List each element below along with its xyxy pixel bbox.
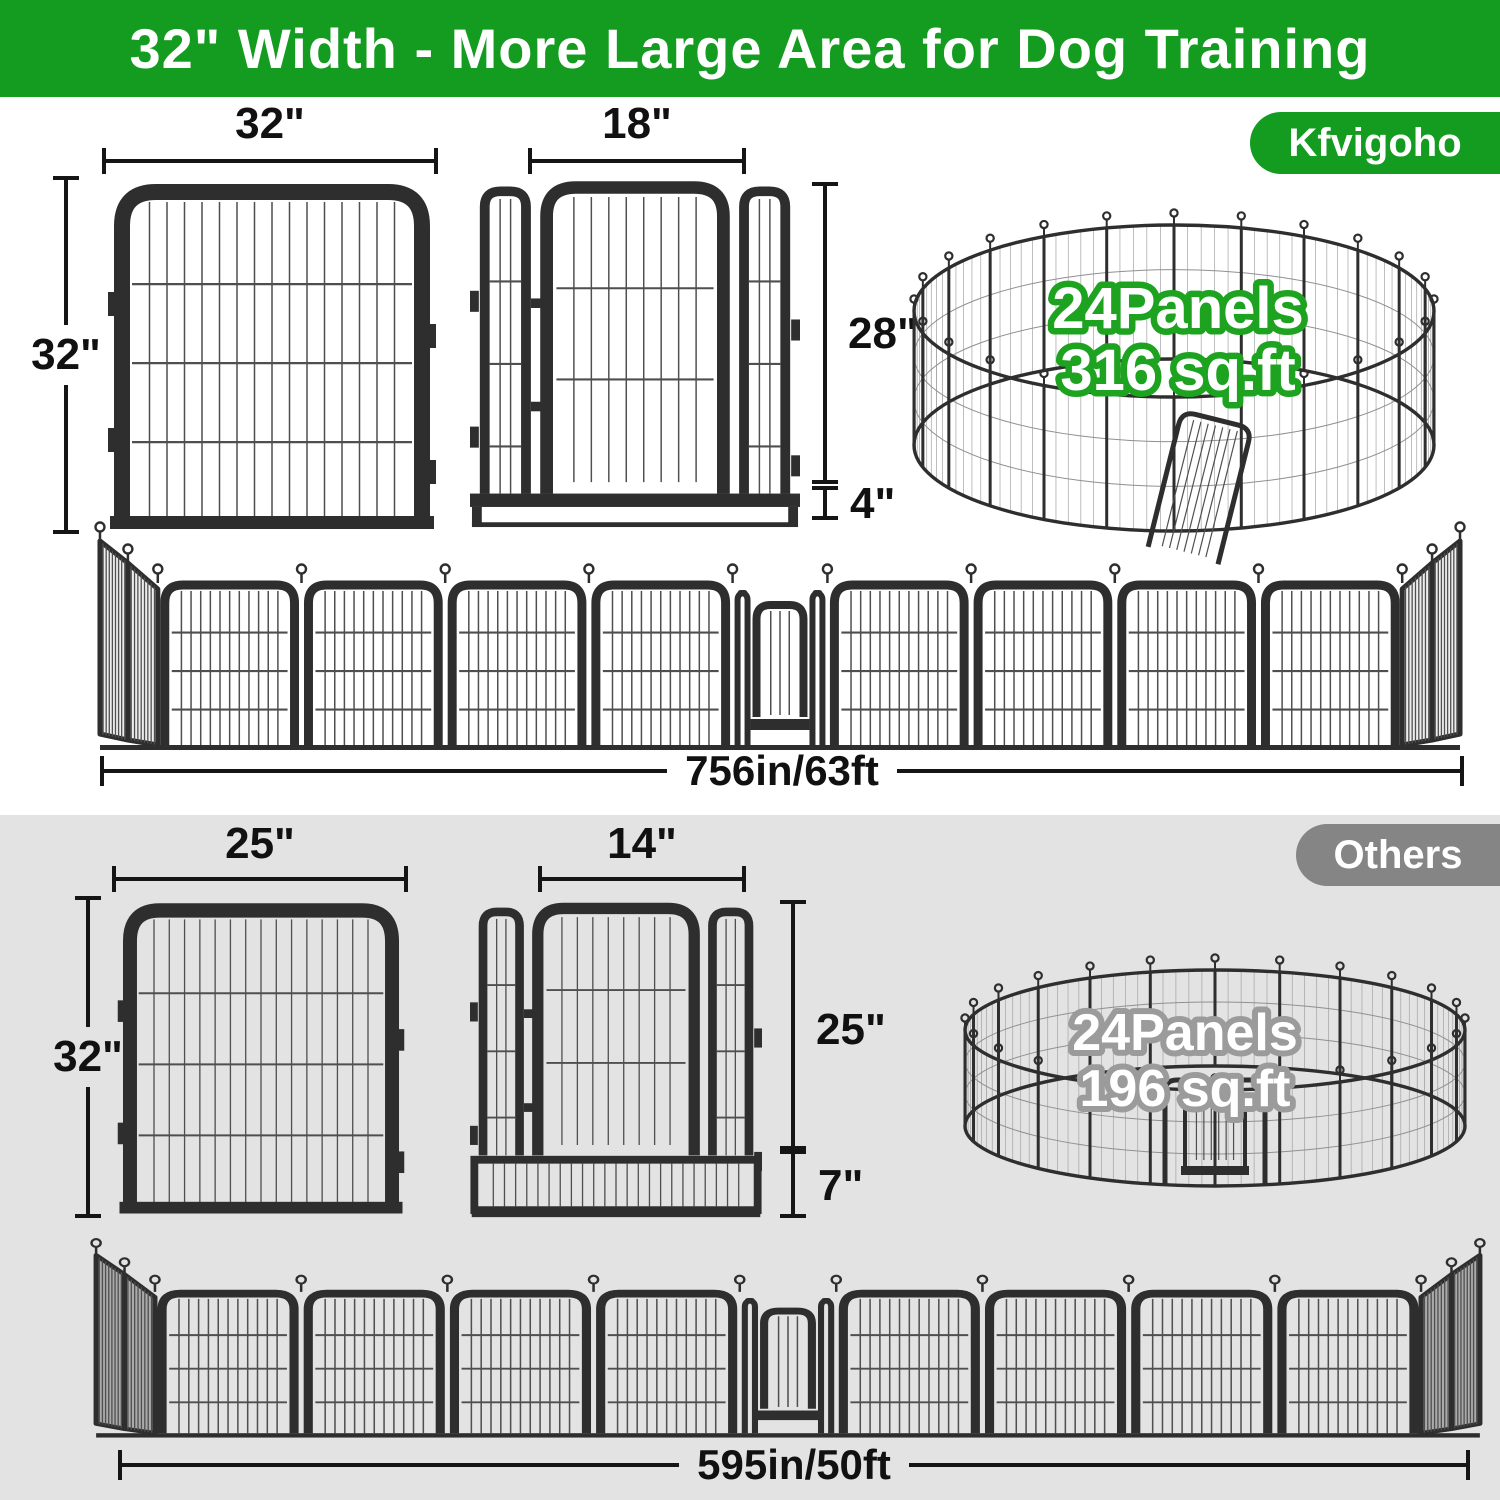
dimension-line — [791, 900, 795, 1150]
dimension-tick — [528, 148, 532, 174]
others-door-width-dimension — [538, 866, 746, 892]
others-panel-height-label: 32" — [53, 1035, 123, 1079]
others-door-height-dimension — [780, 900, 806, 1150]
kfvigoho-panel-height-dimension: 32" — [38, 176, 94, 534]
others-badge: Others — [1296, 824, 1500, 886]
kfvigoho-pen-label: 24Panels 316 sq.ft — [958, 264, 1398, 396]
dimension-tick — [812, 480, 838, 484]
others-pen-panels-label: 24Panels — [1072, 1004, 1298, 1062]
kfvigoho-door-height-dimension — [812, 182, 838, 484]
dimension-line — [112, 877, 408, 881]
others-row-diagram — [88, 1250, 1488, 1455]
others-panel-width-label: 25" — [112, 822, 408, 866]
dimension-line — [538, 877, 746, 881]
kfvigoho-door-width-label: 18" — [528, 102, 746, 146]
dimension-line — [823, 486, 827, 520]
others-row-length-label: 595in/50ft — [697, 1444, 891, 1486]
dimension-tick — [812, 516, 838, 520]
dimension-line — [64, 385, 68, 530]
kfvigoho-row-length-label: 756in/63ft — [685, 750, 879, 792]
dimension-tick — [780, 1214, 806, 1218]
dimension-tick — [434, 148, 438, 174]
dimension-tick — [112, 866, 116, 892]
others-door-width-label: 14" — [538, 822, 746, 866]
dimension-tick — [742, 148, 746, 174]
dimension-tick — [75, 1214, 101, 1218]
kfvigoho-row-diagram — [92, 535, 1468, 770]
dimension-tick — [538, 866, 542, 892]
dimension-line — [528, 159, 746, 163]
brand-badge-label: Kfvigoho — [1288, 121, 1461, 166]
kfvigoho-row-length-dimension: 756in/63ft — [100, 750, 1464, 792]
dimension-line — [86, 1087, 90, 1214]
dimension-tick — [404, 866, 408, 892]
dimension-tick — [812, 486, 838, 490]
others-door-bottom-label: 7" — [818, 1164, 863, 1208]
dimension-line — [122, 1463, 679, 1467]
banner-title: 32" Width - More Large Area for Dog Trai… — [130, 16, 1371, 81]
others-pen-area-label: 196 sq.ft — [1080, 1060, 1291, 1118]
dimension-line — [823, 182, 827, 484]
others-panel-width-dimension — [112, 866, 408, 892]
dimension-line — [897, 769, 1460, 773]
dimension-tick — [780, 1150, 806, 1154]
dimension-tick — [812, 182, 838, 186]
dimension-tick — [53, 530, 79, 534]
others-pen-label: 24Panels 196 sq.ft — [985, 1000, 1385, 1124]
kfvigoho-panel-height-label: 32" — [31, 333, 101, 377]
kfvigoho-pen-area-label: 316 sq.ft — [1060, 338, 1295, 403]
dimension-line — [791, 1150, 795, 1218]
others-door-bottom-dimension — [780, 1150, 806, 1218]
dimension-line — [86, 900, 90, 1027]
kfvigoho-door-diagram — [470, 176, 800, 528]
dimension-tick — [102, 148, 106, 174]
header-banner: 32" Width - More Large Area for Dog Trai… — [0, 0, 1500, 97]
kfvigoho-pen-panels-label: 24Panels — [1052, 276, 1304, 341]
dimension-line — [909, 1463, 1466, 1467]
dimension-tick — [780, 900, 806, 904]
dimension-tick — [1460, 756, 1464, 786]
others-row-length-dimension: 595in/50ft — [118, 1444, 1470, 1486]
others-panel-height-dimension: 32" — [60, 896, 116, 1218]
kfvigoho-panel-width-dimension — [102, 148, 438, 174]
dimension-tick — [742, 866, 746, 892]
kfvigoho-door-bottom-dimension — [812, 486, 838, 520]
dimension-tick — [1466, 1450, 1470, 1480]
dimension-line — [102, 159, 438, 163]
kfvigoho-panel-diagram — [106, 176, 438, 534]
brand-badge: Kfvigoho — [1250, 112, 1500, 174]
kfvigoho-panel-width-label: 32" — [102, 102, 438, 146]
others-panel-diagram — [116, 896, 406, 1218]
kfvigoho-door-width-dimension — [528, 148, 746, 174]
others-door-height-label: 25" — [816, 1008, 886, 1052]
others-door-diagram — [470, 898, 762, 1218]
dimension-line — [104, 769, 667, 773]
dimension-line — [64, 180, 68, 325]
others-badge-label: Others — [1334, 833, 1463, 878]
